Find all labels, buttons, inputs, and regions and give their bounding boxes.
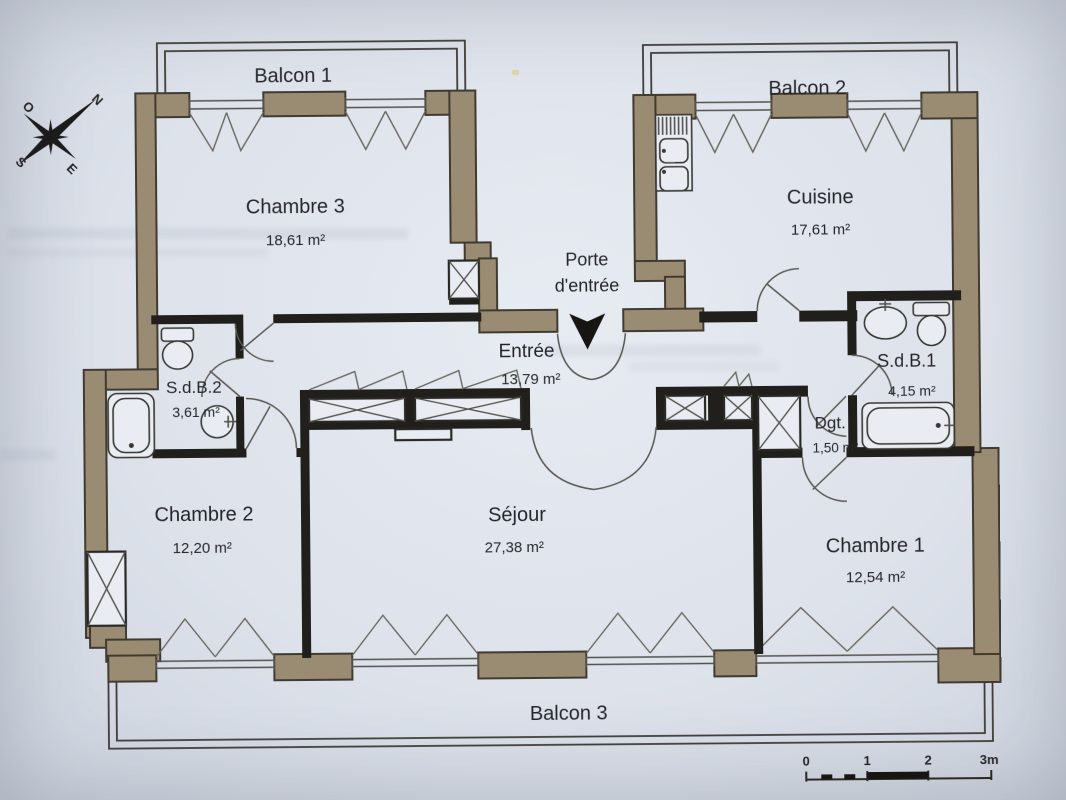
dust-speck bbox=[512, 70, 519, 75]
window-icon bbox=[352, 614, 478, 669]
room-area-chambre2: 12,20 m² bbox=[173, 540, 232, 558]
kitchen-sink-icon bbox=[656, 115, 693, 191]
door-swing bbox=[246, 398, 296, 448]
balcony3-label: Balcon 3 bbox=[530, 702, 608, 725]
room-label-sejour: Séjour bbox=[488, 504, 546, 527]
closet-icon bbox=[309, 398, 405, 422]
door-swing bbox=[757, 269, 799, 311]
room-label-chambre2: Chambre 2 bbox=[154, 503, 253, 526]
closet-icon bbox=[449, 260, 479, 298]
scale-tick-1: 1 bbox=[863, 753, 870, 768]
washbasin-icon bbox=[864, 299, 906, 339]
window-icon bbox=[695, 100, 771, 153]
window-icon bbox=[87, 552, 126, 626]
room-area-sdb1: 4,15 m² bbox=[888, 382, 936, 398]
window-icon bbox=[756, 606, 938, 666]
compass-east-label: E bbox=[64, 160, 81, 177]
room-area-chambre3: 18,61 m² bbox=[266, 232, 325, 250]
closet-icon bbox=[724, 395, 752, 420]
window-icon bbox=[586, 612, 714, 667]
room-label-sdb2: S.d.B.2 bbox=[166, 378, 222, 397]
scale-tick-3m: 3m bbox=[980, 752, 999, 767]
toilet-icon bbox=[161, 328, 193, 369]
door-swing bbox=[803, 457, 847, 501]
double-door-swing bbox=[531, 427, 657, 490]
folding-door-icon bbox=[724, 372, 752, 386]
compass-north-label: N bbox=[89, 91, 106, 108]
toilet-icon bbox=[913, 302, 949, 345]
bathtub-icon bbox=[108, 393, 155, 457]
room-label-chambre1: Chambre 1 bbox=[826, 535, 925, 558]
room-area-sejour: 27,38 m² bbox=[485, 539, 544, 557]
compass-rose: N O S E bbox=[12, 91, 107, 178]
entrance-door-label-line2: d'entrée bbox=[555, 275, 620, 296]
room-area-sdb2: 3,61 m² bbox=[172, 404, 220, 420]
scale-bar: 0 1 2 3m bbox=[802, 752, 998, 782]
room-area-entree: 13,79 m² bbox=[501, 371, 560, 389]
bathtub-icon bbox=[862, 402, 954, 449]
scale-tick-0: 0 bbox=[802, 754, 809, 769]
folding-door-icon bbox=[309, 371, 407, 390]
floorplan-photo: Balcon 1 Balcon 2 Balcon 3 Chambre 3 18,… bbox=[0, 0, 1066, 800]
window-icon bbox=[847, 99, 921, 152]
closet-icon bbox=[415, 397, 521, 421]
room-area-dgt: 1,50 m² bbox=[812, 440, 858, 455]
room-area-cuisine: 17,61 m² bbox=[791, 221, 850, 239]
room-label-dgt: Dgt. bbox=[815, 413, 846, 432]
entrance-arrow-icon bbox=[569, 313, 605, 349]
compass-west-label: O bbox=[20, 98, 38, 116]
room-label-cuisine: Cuisine bbox=[787, 186, 854, 209]
window-icon bbox=[189, 98, 263, 151]
floor-plan: Balcon 1 Balcon 2 Balcon 3 Chambre 3 18,… bbox=[0, 0, 1066, 800]
room-label-sdb1: S.d.B.1 bbox=[877, 350, 936, 371]
compass-south-label: S bbox=[13, 154, 30, 171]
balcony-railings bbox=[103, 36, 993, 749]
room-area-chambre1: 12,54 m² bbox=[846, 569, 905, 587]
scale-tick-2: 2 bbox=[924, 753, 931, 768]
balcony2-label: Balcon 2 bbox=[768, 77, 846, 100]
threshold-box bbox=[395, 429, 451, 440]
labels: Balcon 1 Balcon 2 Balcon 3 Chambre 3 18,… bbox=[151, 59, 940, 728]
entrance-door-label-line1: Porte bbox=[565, 249, 608, 269]
window-icon bbox=[156, 618, 274, 671]
closet-icon bbox=[665, 395, 705, 420]
room-label-chambre3: Chambre 3 bbox=[246, 196, 345, 219]
window-icon bbox=[345, 97, 425, 150]
room-label-entree: Entrée bbox=[498, 341, 554, 362]
balcony1-label: Balcon 1 bbox=[254, 65, 332, 88]
closet-icon bbox=[758, 396, 800, 450]
